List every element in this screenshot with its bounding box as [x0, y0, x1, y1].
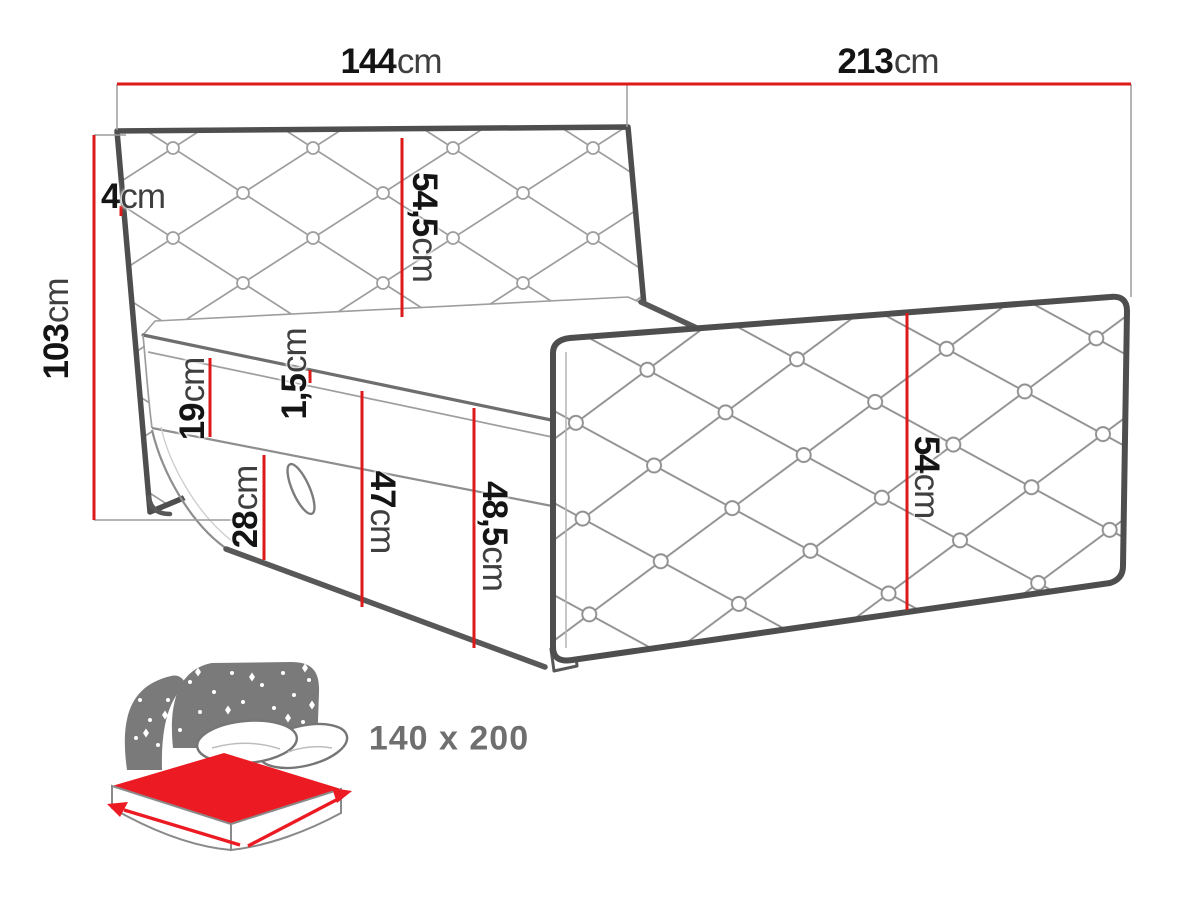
dimension-label-headboard-top-thickness: 4cm	[101, 177, 165, 217]
footboard-panel	[553, 297, 1127, 661]
dimension-label-total-height: 103cm	[37, 278, 77, 379]
mattress-size-label: 140 x 200	[369, 720, 529, 759]
dimension-label-side-height-47: 47cm	[362, 471, 402, 554]
dimension-label-base-height: 28cm	[226, 466, 266, 549]
bed-dimension-diagram: 144cm 213cm 4cm 103cm 54,5cm 19cm 1,5cm …	[0, 0, 1200, 899]
bed-drawing	[117, 127, 1127, 671]
dimension-label-bed-length: 213cm	[837, 42, 938, 82]
dimension-label-mattress-height: 19cm	[173, 358, 213, 441]
dimension-label-footboard-height: 54cm	[906, 436, 946, 519]
dimension-label-mattress-welt: 1,5cm	[275, 328, 315, 419]
diagram-canvas	[0, 0, 1200, 899]
dimension-label-headboard-above-mattress: 54,5cm	[404, 172, 444, 282]
dimension-label-side-height-total: 48,5cm	[474, 481, 514, 591]
dimension-label-headboard-width: 144cm	[340, 42, 441, 82]
bed-size-icon	[107, 662, 352, 850]
